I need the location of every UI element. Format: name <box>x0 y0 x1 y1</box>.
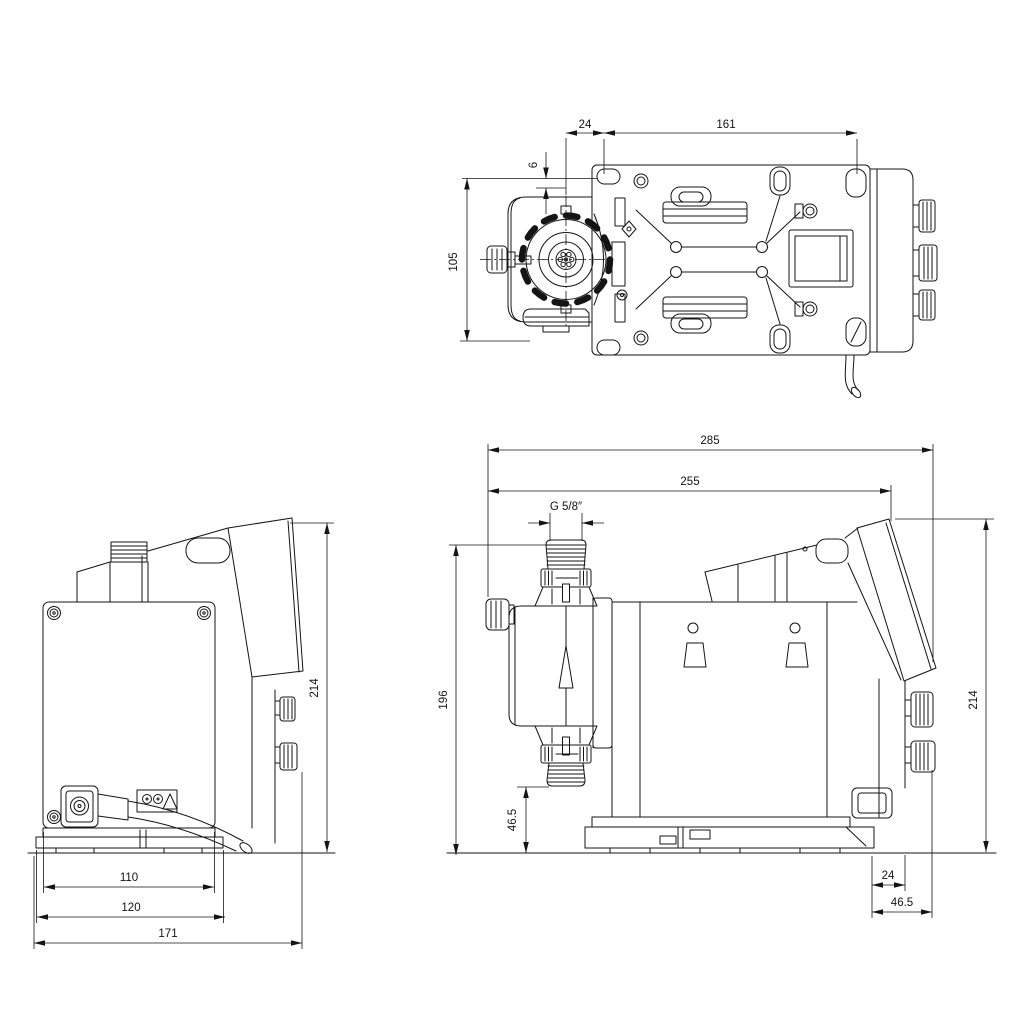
pump-head <box>509 606 593 726</box>
dim-label-285: 285 <box>700 435 719 447</box>
power-cable <box>845 355 862 399</box>
front-view-base <box>28 828 335 853</box>
drawing-page: 24 161 6 105 <box>0 0 1024 1024</box>
dim-label-214-side: 214 <box>968 690 980 710</box>
gear-housing <box>612 602 827 817</box>
front-view-plate <box>43 602 215 828</box>
cable <box>128 801 243 841</box>
front-view: 214 110 120 171 <box>28 518 335 949</box>
top-view-centerlines <box>480 196 606 328</box>
plate-box <box>789 230 853 287</box>
side-view: 285 255 G 5/8″ 196 46. <box>438 435 996 918</box>
front-view-cable-gland <box>61 786 254 855</box>
dim-label-255: 255 <box>680 476 699 488</box>
dim-label-214: 214 <box>309 678 321 698</box>
top-view: 24 161 6 105 <box>448 119 937 399</box>
dim-label-120: 120 <box>121 902 140 914</box>
side-view-knobs <box>905 692 935 772</box>
drawing-canvas: 24 161 6 105 <box>0 0 1024 1024</box>
connector-knob <box>913 290 935 320</box>
screw-boss <box>634 331 648 345</box>
warning-label <box>137 790 177 812</box>
side-view-dimensions: 285 255 G 5/8″ 196 46. <box>438 435 994 918</box>
plate-screw <box>48 811 61 824</box>
plate-screw <box>198 607 211 620</box>
mount-hole <box>790 623 800 633</box>
side-view-base <box>447 817 996 853</box>
bleed-knob <box>486 599 509 630</box>
dim-label-161: 161 <box>716 119 735 131</box>
control-panel <box>857 519 936 681</box>
top-view-control-end <box>845 169 937 399</box>
dim-label-105: 105 <box>448 252 460 271</box>
connector-knob <box>913 245 937 281</box>
screw-boss <box>634 174 648 188</box>
front-view-cover <box>77 518 303 843</box>
handle-groove <box>816 539 848 563</box>
dim-label-110: 110 <box>120 872 138 884</box>
handle-groove <box>186 538 230 563</box>
front-view-dimensions: 214 110 120 171 <box>34 523 334 949</box>
plate-hole-top-right <box>846 169 866 197</box>
dim-label-46-5-left: 46.5 <box>507 809 519 831</box>
warning-triangle-icon <box>163 794 177 809</box>
plate-screw <box>48 607 61 620</box>
dim-label-thread: G 5/8″ <box>550 501 582 513</box>
top-view-mounting-plate <box>592 165 870 355</box>
mount-hole <box>688 623 698 633</box>
flow-arrow <box>559 646 573 688</box>
side-view-dosing-head <box>486 540 597 786</box>
plate-hole-top-left <box>597 169 620 184</box>
dim-label-24: 24 <box>579 119 592 131</box>
control-panel <box>228 518 303 677</box>
dim-label-24-rear: 24 <box>882 870 895 882</box>
dim-label-171: 171 <box>158 928 177 940</box>
connector-knob <box>913 200 935 232</box>
front-view-knobs <box>275 697 297 770</box>
plate-hole-bottom-left <box>597 340 620 355</box>
dim-label-46-5-rear: 46.5 <box>891 897 913 909</box>
dim-label-6: 6 <box>528 162 540 168</box>
dim-label-196: 196 <box>438 690 450 709</box>
cable-plug <box>98 794 128 820</box>
side-view-body <box>593 519 936 818</box>
